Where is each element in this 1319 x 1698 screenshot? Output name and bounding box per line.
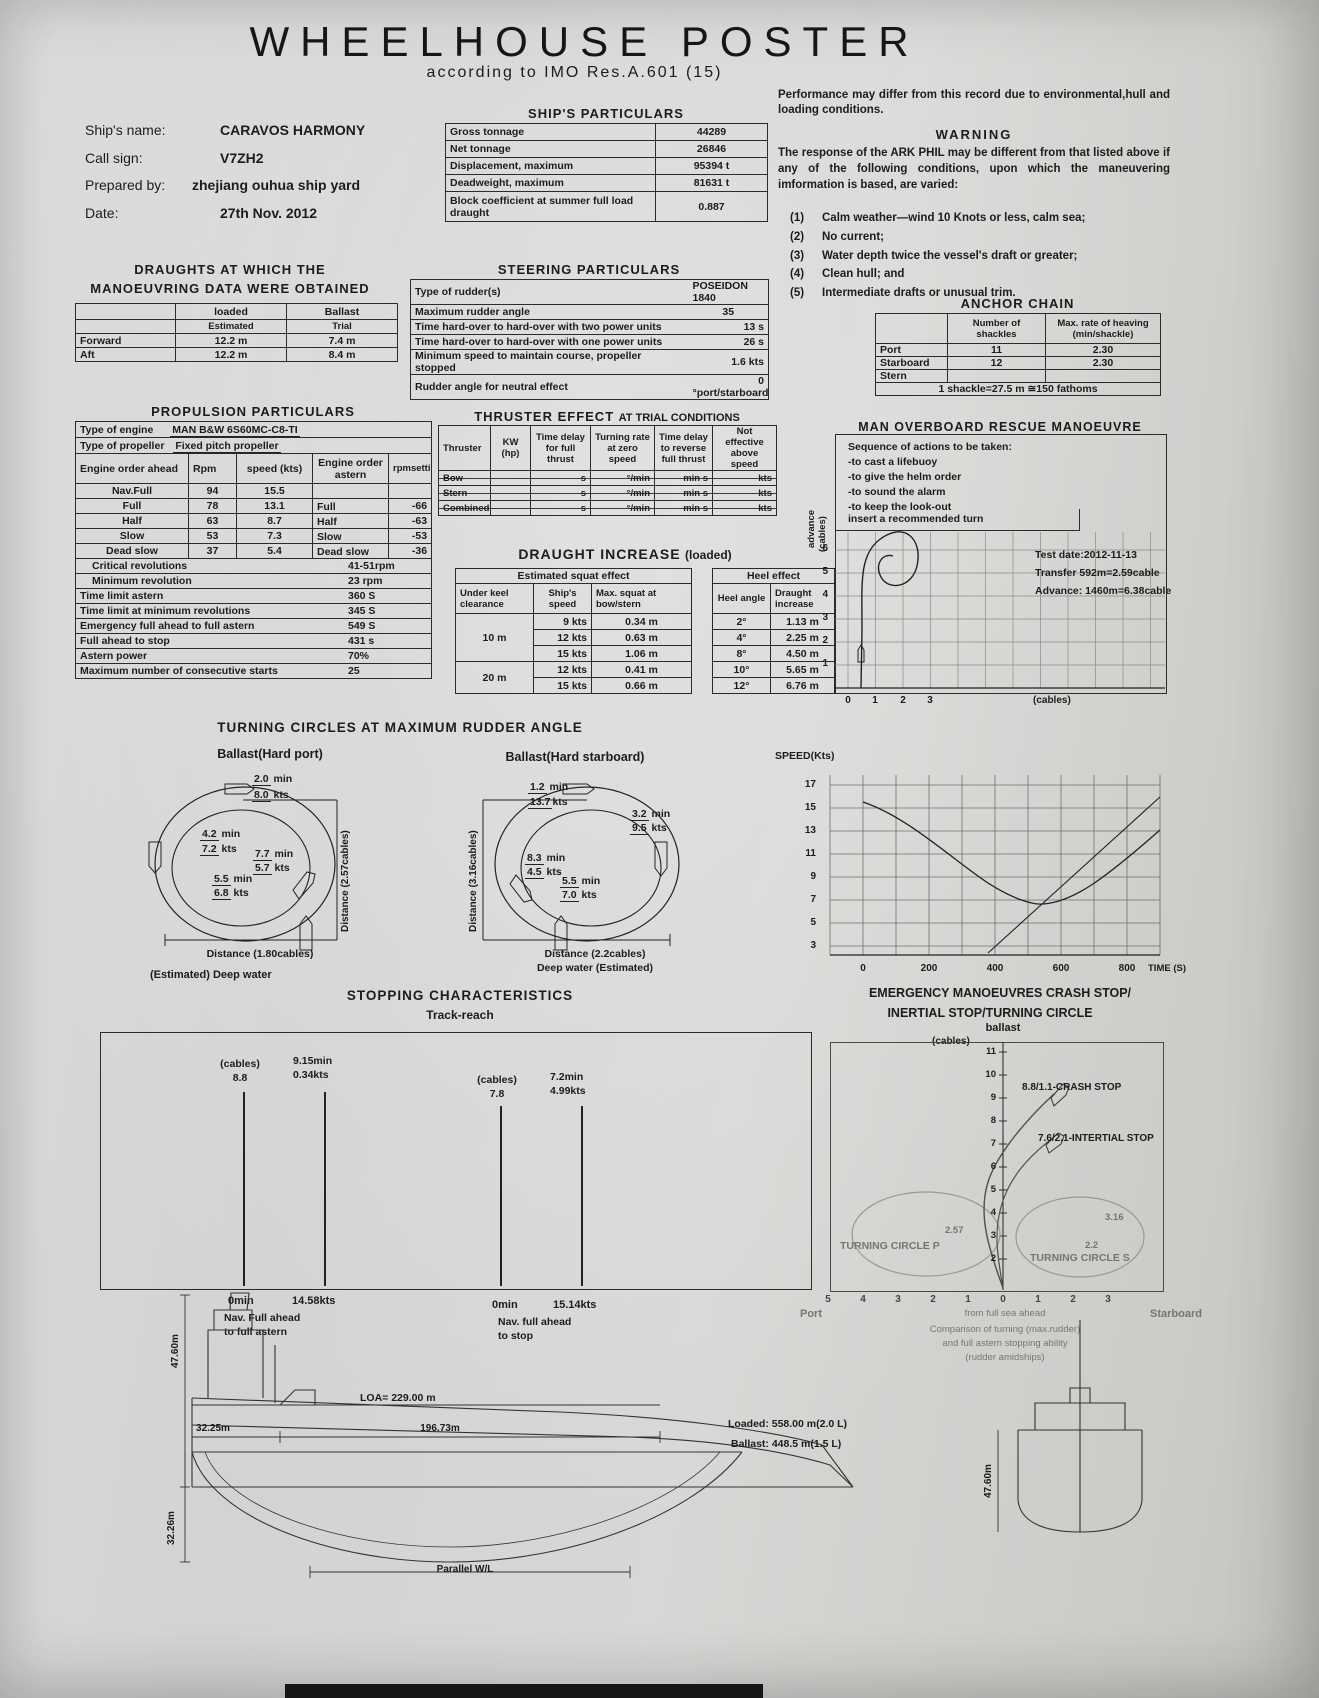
- particulars-label: Net tonnage: [446, 141, 656, 158]
- turn-speed: 8.0: [252, 789, 271, 802]
- draughts-table: loadedBallast EstimatedTrial Forward12.2…: [75, 303, 398, 362]
- steering-value: 1.6 kts: [689, 350, 769, 375]
- warning-title: WARNING: [778, 127, 1170, 142]
- unit-kts: kts: [234, 887, 249, 899]
- stopping-box: [100, 1032, 812, 1290]
- draughts-sub-trial: Trial: [287, 320, 398, 334]
- speed-ytick: 13: [798, 825, 816, 836]
- turn-speed: 5.7: [253, 862, 272, 875]
- emergency-ytick: 3: [980, 1230, 996, 1241]
- stopping-track-line: [243, 1092, 245, 1286]
- page-title: WHEELHOUSE POSTER: [0, 18, 1169, 66]
- mob-action: -to cast a lifebuoy: [848, 456, 937, 468]
- stopping-left-cables-label: (cables): [208, 1058, 272, 1070]
- order-astern: Full: [313, 499, 389, 514]
- stopping-right-cables: 7.8: [465, 1088, 529, 1100]
- squat-ukc: 10 m: [456, 614, 534, 662]
- emergency-ytick: 10: [980, 1069, 996, 1080]
- steering-value: 13 s: [689, 320, 769, 335]
- unit-min: min: [275, 848, 294, 860]
- mob-ytick: 4: [812, 589, 828, 600]
- thruster-row-name: Bow: [439, 471, 491, 486]
- draughts-aft-ballast: 8.4 m: [287, 348, 398, 362]
- steering-label: Time hard-over to hard-over with two pow…: [411, 320, 689, 335]
- profile-dim-32-25: 32.25m: [178, 1423, 248, 1434]
- warning-item-num: (4): [790, 268, 804, 280]
- extra-row-value: 345 S: [348, 605, 375, 617]
- unit-min: min: [234, 873, 253, 885]
- steering-table: Type of rudder(s)POSEIDON 1840 Maximum r…: [410, 279, 769, 400]
- squat-value: 0.63 m: [592, 630, 692, 646]
- warning-item-text: Clean hull; and: [822, 268, 904, 280]
- thruster-cell: s: [531, 501, 591, 516]
- anchor-stern-shackles: [948, 370, 1046, 383]
- particulars-value: 95394 t: [656, 158, 768, 175]
- order-astern: Slow: [313, 529, 389, 544]
- steering-label: Rudder angle for neutral effect: [411, 375, 689, 400]
- extra-row-label: Minimum revolution: [92, 575, 192, 587]
- heel-col1: Heel angle: [713, 584, 771, 614]
- turning-annotation: 5.5 min: [212, 873, 252, 885]
- warning-item-num: (1): [790, 212, 804, 224]
- anchor-stbd-shackles: 12: [948, 357, 1046, 370]
- unit-min: min: [582, 875, 601, 887]
- speed-value: 5.4: [237, 544, 313, 559]
- thruster-cell: °/min: [591, 486, 655, 501]
- squat-speed: 12 kts: [534, 630, 592, 646]
- turn-speed: 9.5: [630, 822, 649, 835]
- col-rpm: Rpm: [189, 454, 237, 484]
- steering-label: Type of rudder(s): [411, 280, 689, 305]
- mob-turn-track: [861, 532, 918, 688]
- anchor-table: Number of shacklesMax. rate of heaving (…: [875, 313, 1161, 396]
- extra-row-value: 431 s: [348, 635, 374, 647]
- mob-xunit: (cables): [1033, 695, 1071, 706]
- warning-item-text: Water depth twice the vessel's draft or …: [822, 250, 1077, 262]
- turning-port-label: Ballast(Hard port): [185, 747, 355, 761]
- stopping-subtitle: Track-reach: [200, 1008, 720, 1022]
- turning-annotation: 1.2 min: [528, 781, 568, 793]
- stopping-track-line: [324, 1092, 326, 1286]
- order-ahead: Half: [76, 514, 189, 529]
- turn-time: 1.2: [528, 781, 547, 794]
- turn-time: 8.3: [525, 852, 544, 865]
- emergency-ytick: 5: [980, 1184, 996, 1195]
- draughts-row-label: Aft: [76, 348, 176, 362]
- extra-row-value: 360 S: [348, 590, 375, 602]
- turning-circle-port-ghost: [852, 1192, 1000, 1276]
- unit-kts: kts: [222, 843, 237, 855]
- warning-item-num: (5): [790, 287, 804, 299]
- stopping-track-line: [500, 1106, 502, 1286]
- steering-label: Time hard-over to hard-over with one pow…: [411, 335, 689, 350]
- mob-test-date: Test date:2012-11-13: [1035, 549, 1137, 561]
- turning-circle-starboard-ghost: [1016, 1197, 1144, 1277]
- extra-row-value: 549 S: [348, 620, 375, 632]
- unit-kts: kts: [275, 862, 290, 874]
- particulars-table: Gross tonnage44289 Net tonnage26846 Disp…: [445, 123, 768, 222]
- section-height-label: 47.60m: [983, 1464, 994, 1498]
- stopping-right-cables-label: (cables): [465, 1074, 529, 1086]
- speed-time-chart: [828, 775, 1162, 961]
- thruster-col: Turning rate at zero speed: [591, 426, 655, 471]
- profile-dim-32-26: 32.26m: [166, 1511, 177, 1545]
- turning-annotation: 9.5 kts: [630, 822, 667, 834]
- thruster-cell: kts: [713, 486, 777, 501]
- mob-ytick: 3: [812, 612, 828, 623]
- stopping-left-top-kts: 0.34kts: [293, 1069, 329, 1081]
- turning-starboard-distance-v: Distance (3.16cables): [468, 830, 479, 932]
- particulars-label: Gross tonnage: [446, 124, 656, 141]
- emergency-ytick: 2: [980, 1253, 996, 1264]
- mob-ytick: 5: [812, 566, 828, 577]
- mob-ytick: 6: [812, 543, 828, 554]
- thruster-row-name: Stern: [439, 486, 491, 501]
- turning-annotation: 6.8 kts: [212, 887, 249, 899]
- order-astern: [313, 484, 389, 499]
- mob-transfer: Transfer 592m=2.59cable: [1035, 567, 1160, 579]
- extra-row-value: 25: [348, 665, 360, 677]
- anchor-col-shackles: Number of shackles: [948, 314, 1046, 344]
- ship-icon: [293, 872, 315, 899]
- stopping-right-top-kts: 4.99kts: [550, 1085, 586, 1097]
- bottom-black-bar: [285, 1684, 763, 1698]
- turning-annotation: 8.3 min: [525, 852, 565, 864]
- warning-item-num: (3): [790, 250, 804, 262]
- draughts-sub-loaded: Estimated: [176, 320, 287, 334]
- emergency-ytick: 11: [980, 1046, 996, 1057]
- particulars-label: Displacement, maximum: [446, 158, 656, 175]
- squat-speed: 9 kts: [534, 614, 592, 630]
- steering-value: 26 s: [689, 335, 769, 350]
- squat-speed: 15 kts: [534, 646, 592, 662]
- warning-body: The response of the ARK PHIL may be diff…: [778, 145, 1170, 193]
- order-ahead: Dead slow: [76, 544, 189, 559]
- mob-action: -to sound the alarm: [848, 486, 945, 498]
- turn-speed: 4.5: [525, 866, 544, 879]
- emergency-ballast-label: ballast: [938, 1022, 1068, 1034]
- heel-angle: 2°: [713, 614, 771, 630]
- draughts-forward-loaded: 12.2 m: [176, 334, 287, 348]
- draughts-title-1: DRAUGHTS AT WHICH THE: [60, 262, 400, 277]
- thruster-cell: s: [531, 486, 591, 501]
- heel-increase: 6.76 m: [771, 678, 835, 694]
- draughts-row-label: Forward: [76, 334, 176, 348]
- ship-name-value: CARAVOS HARMONY: [220, 122, 365, 138]
- draught-increase-title: DRAUGHT INCREASE (loaded): [455, 546, 795, 564]
- unit-min: min: [547, 852, 566, 864]
- speed-ytick: 3: [798, 940, 816, 951]
- squat-table: Estimated squat effect Under keel cleara…: [455, 568, 692, 694]
- emergency-ytick: 4: [980, 1207, 996, 1218]
- emergency-title-2: INERTIAL STOP/TURNING CIRCLE: [810, 1006, 1170, 1020]
- rpm-value: 94: [189, 484, 237, 499]
- mob-ytick: 2: [812, 635, 828, 646]
- thruster-table: Thruster KW (hp) Time delay for full thr…: [438, 425, 777, 516]
- turn-time: 5.5: [560, 875, 579, 888]
- steering-title: STEERING PARTICULARS: [410, 262, 768, 277]
- rpmset-value: -36: [389, 544, 432, 559]
- rpmset-value: -66: [389, 499, 432, 514]
- emergency-ytick: 8: [980, 1115, 996, 1126]
- propulsion-title: PROPULSION PARTICULARS: [75, 404, 431, 419]
- thruster-cell: s: [531, 471, 591, 486]
- rpmset-value: -53: [389, 529, 432, 544]
- mob-ytick: 1: [812, 658, 828, 669]
- particulars-value: 26846: [656, 141, 768, 158]
- anchor-title: ANCHOR CHAIN: [875, 296, 1160, 311]
- particulars-value: 0.887: [656, 192, 768, 222]
- draughts-forward-ballast: 7.4 m: [287, 334, 398, 348]
- anchor-row-label: Starboard: [876, 357, 948, 370]
- turning-annotation: 3.2 min: [630, 808, 670, 820]
- speed-ytick: 9: [798, 871, 816, 882]
- turning-annotation: 13.7kts: [528, 796, 568, 808]
- turning-port-distance-h: Distance (1.80cables): [165, 948, 355, 960]
- speed-xlabel: TIME (S): [1148, 963, 1186, 974]
- squat-header: Estimated squat effect: [456, 569, 692, 584]
- draughts-col-loaded: loaded: [176, 304, 287, 320]
- stopping-right-top-min: 7.2min: [550, 1071, 583, 1083]
- waterplane-curve: [192, 1452, 742, 1562]
- speed-ytick: 17: [798, 779, 816, 790]
- extra-row-value: 70%: [348, 650, 369, 662]
- turn-time: 3.2: [630, 808, 649, 821]
- ship-icon: [510, 875, 532, 902]
- mob-xtick: 0: [842, 695, 854, 706]
- anchor-stern-rate: [1046, 370, 1161, 383]
- unit-min: min: [550, 781, 569, 793]
- anchor-footer: 1 shackle=27.5 m ≅150 fathoms: [876, 383, 1161, 396]
- emergency-title-1: EMERGENCY MANOEUVRES CRASH STOP/: [820, 986, 1180, 1000]
- propeller-type-value: Fixed pitch propeller: [173, 440, 280, 453]
- thruster-cell: °/min: [591, 471, 655, 486]
- anchor-port-shackles: 11: [948, 344, 1046, 357]
- stopping-left-cables: 8.8: [208, 1072, 272, 1084]
- speed-xtick: 600: [1049, 963, 1073, 974]
- extra-row-value: 41-51rpm: [348, 560, 395, 572]
- unit-min: min: [652, 808, 671, 820]
- funnel: [230, 1293, 249, 1310]
- heel-angle: 8°: [713, 646, 771, 662]
- extra-row-label: Astern power: [80, 650, 147, 662]
- extra-row-value: 23 rpm: [348, 575, 382, 587]
- rpm-value: 53: [189, 529, 237, 544]
- extra-row-label: Time limit at minimum revolutions: [80, 605, 250, 617]
- anchor-col-rate: Max. rate of heaving (min/shackle): [1046, 314, 1161, 344]
- crash-stop-label: 8.8/1.1-CRASH STOP: [1022, 1082, 1121, 1093]
- engine-type-label: Type of engine: [80, 424, 153, 436]
- speed-xtick: 800: [1115, 963, 1139, 974]
- unit-kts: kts: [652, 822, 667, 834]
- mob-advance: Advance: 1460m=6.38cable: [1035, 585, 1171, 597]
- turn-time: 5.5: [212, 873, 231, 886]
- speed-ytick: 11: [798, 848, 816, 859]
- figure-316: 3.16: [1105, 1212, 1124, 1223]
- thruster-cell: min s: [655, 486, 713, 501]
- unit-min: min: [222, 828, 241, 840]
- col-rpmsetting: rpmsetting: [389, 454, 432, 484]
- thruster-cell: min s: [655, 501, 713, 516]
- mob-xtick: 2: [897, 695, 909, 706]
- turn-speed: 7.2: [200, 843, 219, 856]
- thruster-col: Time delay for full thrust: [531, 426, 591, 471]
- profile-dim-196-73: 196.73m: [400, 1423, 480, 1434]
- speed-value: 15.5: [237, 484, 313, 499]
- thruster-cell: kts: [713, 501, 777, 516]
- prepared-by-value: zhejiang ouhua ship yard: [192, 177, 360, 193]
- profile-loa-label: LOA= 229.00 m: [360, 1392, 436, 1404]
- order-ahead: Full: [76, 499, 189, 514]
- warning-item-text: Calm weather—wind 10 Knots or less, calm…: [822, 212, 1085, 224]
- order-astern: Dead slow: [313, 544, 389, 559]
- mob-title: MAN OVERBOARD RESCUE MANOEUVRE: [820, 420, 1180, 434]
- performance-note: Performance may differ from this record …: [778, 88, 1170, 118]
- figure-257: 2.57: [945, 1225, 964, 1236]
- heel-table: Heel effect Heel angleDraught increase 2…: [712, 568, 835, 694]
- inertial-stop-label: 7.6/2.1-INTERTIAL STOP: [1038, 1133, 1154, 1144]
- speed-xtick: 400: [983, 963, 1007, 974]
- speed-diagonal-line: [988, 797, 1160, 953]
- particulars-label: Block coefficient at summer full load dr…: [446, 192, 656, 222]
- thruster-cell: kts: [713, 471, 777, 486]
- anchor-row-label: Stern: [876, 370, 948, 383]
- squat-col1: Under keel clearance: [456, 584, 534, 614]
- squat-value: 0.41 m: [592, 662, 692, 678]
- ship-icon: [225, 784, 254, 794]
- call-sign-label: Call sign:: [85, 150, 143, 166]
- unit-kts: kts: [582, 889, 597, 901]
- turning-circle-s-label: TURNING CIRCLE S: [1030, 1252, 1130, 1264]
- propulsion-table: Type of engine MAN B&W 6S60MC-C8-TI Type…: [75, 421, 432, 679]
- unit-min: min: [274, 773, 293, 785]
- second-deck-line: [192, 1425, 853, 1487]
- particulars-title: SHIP'S PARTICULARS: [445, 106, 767, 121]
- accommodation-block: [208, 1330, 263, 1398]
- squat-value: 0.66 m: [592, 678, 692, 694]
- turn-speed: 7.0: [560, 889, 579, 902]
- turn-time: 2.0: [252, 773, 271, 786]
- turning-annotation: 4.5 kts: [525, 866, 562, 878]
- draught-increase-title-sub: (loaded): [685, 548, 732, 562]
- mob-sequence-title: Sequence of actions to be taken:: [848, 441, 1012, 453]
- anchor-port-rate: 2.30: [1046, 344, 1161, 357]
- squat-ukc: 20 m: [456, 662, 534, 694]
- turning-port-note: (Estimated) Deep water: [150, 969, 272, 981]
- rpm-value: 78: [189, 499, 237, 514]
- mob-action: -to give the helm order: [848, 471, 961, 483]
- speed-xtick: 200: [917, 963, 941, 974]
- speed-chart-grid: [830, 775, 1160, 955]
- squat-value: 1.06 m: [592, 646, 692, 662]
- extra-row-label: Time limit astern: [80, 590, 163, 602]
- rpm-value: 63: [189, 514, 237, 529]
- extra-row-label: Critical revolutions: [92, 560, 187, 572]
- emergency-ytick: 6: [980, 1161, 996, 1172]
- draughts-title-2: MANOEUVRING DATA WERE OBTAINED: [60, 281, 400, 296]
- emergency-ytick: 9: [980, 1092, 996, 1103]
- ship-profile-drawing: [130, 1285, 1190, 1585]
- wheelhouse-poster: { "header": { "title": "WHEELHOUSE POSTE…: [0, 0, 1319, 1698]
- emergency-ytick: 7: [980, 1138, 996, 1149]
- thruster-row-name: Combined: [439, 501, 491, 516]
- turning-port-distance-v: Distance (2.57cables): [340, 830, 351, 932]
- draught-increase-title-main: DRAUGHT INCREASE: [518, 546, 680, 562]
- draughts-aft-loaded: 12.2 m: [176, 348, 287, 362]
- steering-value: 35: [689, 305, 769, 320]
- profile-loaded-label: Loaded: 558.00 m(2.0 L): [728, 1418, 847, 1430]
- speed-ytick: 7: [798, 894, 816, 905]
- turning-circle-port: [125, 762, 370, 952]
- turning-circle-starboard: [455, 762, 705, 952]
- warning-item-num: (2): [790, 231, 804, 243]
- steering-label: Maximum rudder angle: [411, 305, 689, 320]
- col-speed: speed (kts): [237, 454, 313, 484]
- steering-value: POSEIDON 1840: [689, 280, 769, 305]
- turn-speed: 13.7: [528, 796, 552, 809]
- mob-insert-label: insert a recommended turn: [848, 513, 983, 525]
- turn-speed: 6.8: [212, 887, 231, 900]
- turning-annotation: 7.7 min: [253, 848, 293, 860]
- stopping-title: STOPPING CHARACTERISTICS: [200, 988, 720, 1003]
- anchor-stbd-rate: 2.30: [1046, 357, 1161, 370]
- turning-circle-p-label: TURNING CIRCLE P: [840, 1240, 940, 1252]
- rpmset-value: -63: [389, 514, 432, 529]
- bridge-deck: [214, 1310, 252, 1330]
- particulars-label: Deadweight, maximum: [446, 175, 656, 192]
- turning-annotation: 7.2 kts: [200, 843, 237, 855]
- speed-value: 8.7: [237, 514, 313, 529]
- draughts-col-ballast: Ballast: [287, 304, 398, 320]
- engine-type-value: MAN B&W 6S60MC-C8-TI: [170, 424, 299, 437]
- profile-ballast-label: Ballast: 448.5 m(1.5 L): [731, 1438, 841, 1450]
- extra-row-label: Full ahead to stop: [80, 635, 170, 647]
- particulars-value: 44289: [656, 124, 768, 141]
- mob-xtick: 1: [869, 695, 881, 706]
- date-value: 27th Nov. 2012: [220, 205, 317, 221]
- figure-22: 2.2: [1085, 1240, 1098, 1251]
- thruster-col: Thruster: [439, 426, 491, 471]
- inertial-stop-track: [997, 1141, 1049, 1288]
- speed-ytick: 5: [798, 917, 816, 928]
- turn-time: 7.7: [253, 848, 272, 861]
- thruster-col: KW (hp): [491, 426, 531, 471]
- ship-name-label: Ship's name:: [85, 122, 166, 138]
- thruster-title-sub: AT TRIAL CONDITIONS: [619, 412, 740, 424]
- speed-value: 13.1: [237, 499, 313, 514]
- squat-col3: Max. squat at bow/stern: [592, 584, 692, 614]
- rpmset-value: [389, 484, 432, 499]
- thruster-cell: °/min: [591, 501, 655, 516]
- turning-annotation: 7.0 kts: [560, 889, 597, 901]
- squat-value: 0.34 m: [592, 614, 692, 630]
- rpm-value: 37: [189, 544, 237, 559]
- turn-time: 4.2: [200, 828, 219, 841]
- thruster-title-main: THRUSTER EFFECT: [474, 409, 614, 424]
- speed-chart-ylabel: SPEED(Kts): [775, 750, 835, 762]
- thruster-col: Not effective above speed: [713, 426, 777, 471]
- heel-angle: 12°: [713, 678, 771, 694]
- turning-annotation: 5.5 min: [560, 875, 600, 887]
- order-ahead: Slow: [76, 529, 189, 544]
- profile-parallel-wl: Parallel W/L: [415, 1564, 515, 1575]
- unit-kts: kts: [274, 789, 289, 801]
- mob-xtick: 3: [924, 695, 936, 706]
- col-engine-order-ahead: Engine order ahead: [76, 454, 189, 484]
- squat-col2: Ship's speed: [534, 584, 592, 614]
- turning-annotation: 4.2 min: [200, 828, 240, 840]
- speed-decay-curve: [863, 802, 1160, 904]
